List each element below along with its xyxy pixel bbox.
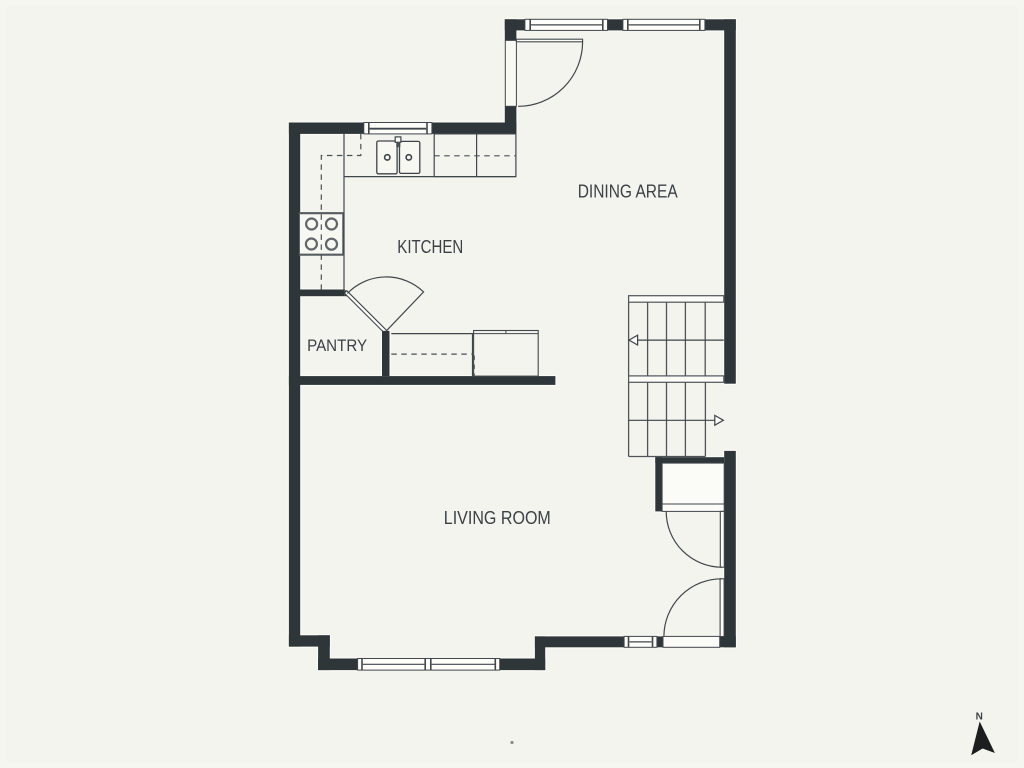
svg-text:LIVING ROOM: LIVING ROOM [444, 508, 551, 528]
svg-text:KITCHEN: KITCHEN [397, 237, 463, 257]
svg-text:PANTRY: PANTRY [307, 336, 367, 355]
svg-text:N: N [976, 711, 983, 722]
svg-text:DINING AREA: DINING AREA [578, 182, 678, 202]
